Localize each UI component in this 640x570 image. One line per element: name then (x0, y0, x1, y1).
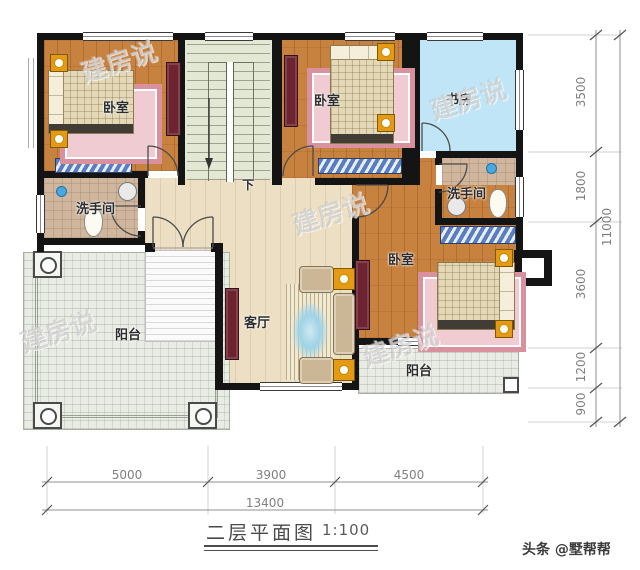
nightstand-lamp (50, 130, 68, 148)
room-label-bath-right: 洗手间 (447, 183, 486, 202)
floor-plan-canvas: 卧室 卧室 卧室 书房 洗手间 洗手间 客厅 阳台 阳台 下 3500 1800… (0, 0, 640, 570)
shower-head (486, 163, 497, 174)
room-label-bedroom2: 卧室 (314, 90, 340, 109)
wall (435, 158, 442, 165)
balcony-column (33, 251, 62, 278)
bed-fold (331, 134, 393, 143)
sofa (299, 266, 334, 293)
window (515, 70, 524, 130)
wardrobe-cabinet (355, 260, 370, 330)
wall (352, 338, 400, 345)
wardrobe-cabinet (166, 62, 181, 136)
dim-right-total: 11000 (600, 205, 614, 249)
window-sill-line (28, 58, 34, 148)
title-underline (204, 545, 378, 551)
sofa (333, 293, 355, 355)
dim-bottom-3: 4500 (377, 468, 441, 482)
dim-right-1: 3500 (574, 70, 588, 114)
toilet (489, 189, 507, 218)
wall (145, 243, 155, 252)
dim-bottom-total: 13400 (233, 496, 297, 510)
wall (272, 33, 282, 185)
wardrobe-cabinet (284, 55, 298, 127)
wall (315, 178, 420, 185)
wall (138, 178, 145, 208)
wall (435, 218, 516, 225)
room-label-bedroom3: 卧室 (388, 249, 414, 268)
window (427, 32, 483, 41)
stair-divider (226, 62, 234, 182)
nightstand-lamp (495, 320, 513, 338)
tv-cabinet (225, 288, 239, 360)
wall (436, 151, 516, 158)
closet (318, 158, 402, 174)
nightstand-lamp (50, 54, 68, 72)
balcony-right-deck (358, 348, 519, 394)
nightstand-lamp (377, 114, 395, 132)
dim-right-2: 1800 (574, 164, 588, 208)
wall (215, 250, 223, 385)
window (205, 32, 253, 41)
sofa (299, 357, 334, 384)
balcony-steps-area (145, 250, 219, 342)
plan-scale: 1:100 (322, 521, 370, 539)
window (515, 177, 524, 217)
window (83, 32, 173, 41)
room-label-bedroom1: 卧室 (103, 97, 129, 116)
nightstand-lamp (377, 43, 395, 61)
coffee-table (292, 302, 328, 360)
room-label-balcony-right: 阳台 (406, 360, 432, 379)
balcony-column (188, 402, 217, 429)
suite-passage-floor (418, 158, 436, 188)
dim-bottom-1: 5000 (95, 468, 159, 482)
side-table (333, 359, 355, 381)
plan-title: 二层平面图 (206, 518, 316, 545)
dim-bottom-2: 3900 (239, 468, 303, 482)
window (36, 195, 45, 233)
room-label-balcony-left: 阳台 (115, 324, 141, 343)
wall (37, 238, 145, 245)
room-label-study: 书房 (446, 89, 472, 108)
side-table (333, 268, 355, 290)
sink (118, 182, 137, 201)
stair-down-label: 下 (242, 176, 254, 193)
dim-right-5: 900 (574, 382, 588, 426)
window (345, 32, 395, 41)
balcony-column (33, 402, 62, 429)
room-label-bath-left: 洗手间 (76, 198, 115, 217)
nightstand-lamp (495, 249, 513, 267)
closet (440, 226, 516, 244)
wall (211, 243, 223, 252)
room-label-living: 客厅 (244, 312, 270, 331)
shower-head (56, 186, 67, 197)
balcony-column-small (503, 377, 519, 393)
credit-watermark: 头条 @墅帮帮 (522, 539, 611, 559)
dim-right-3: 3600 (574, 262, 588, 306)
